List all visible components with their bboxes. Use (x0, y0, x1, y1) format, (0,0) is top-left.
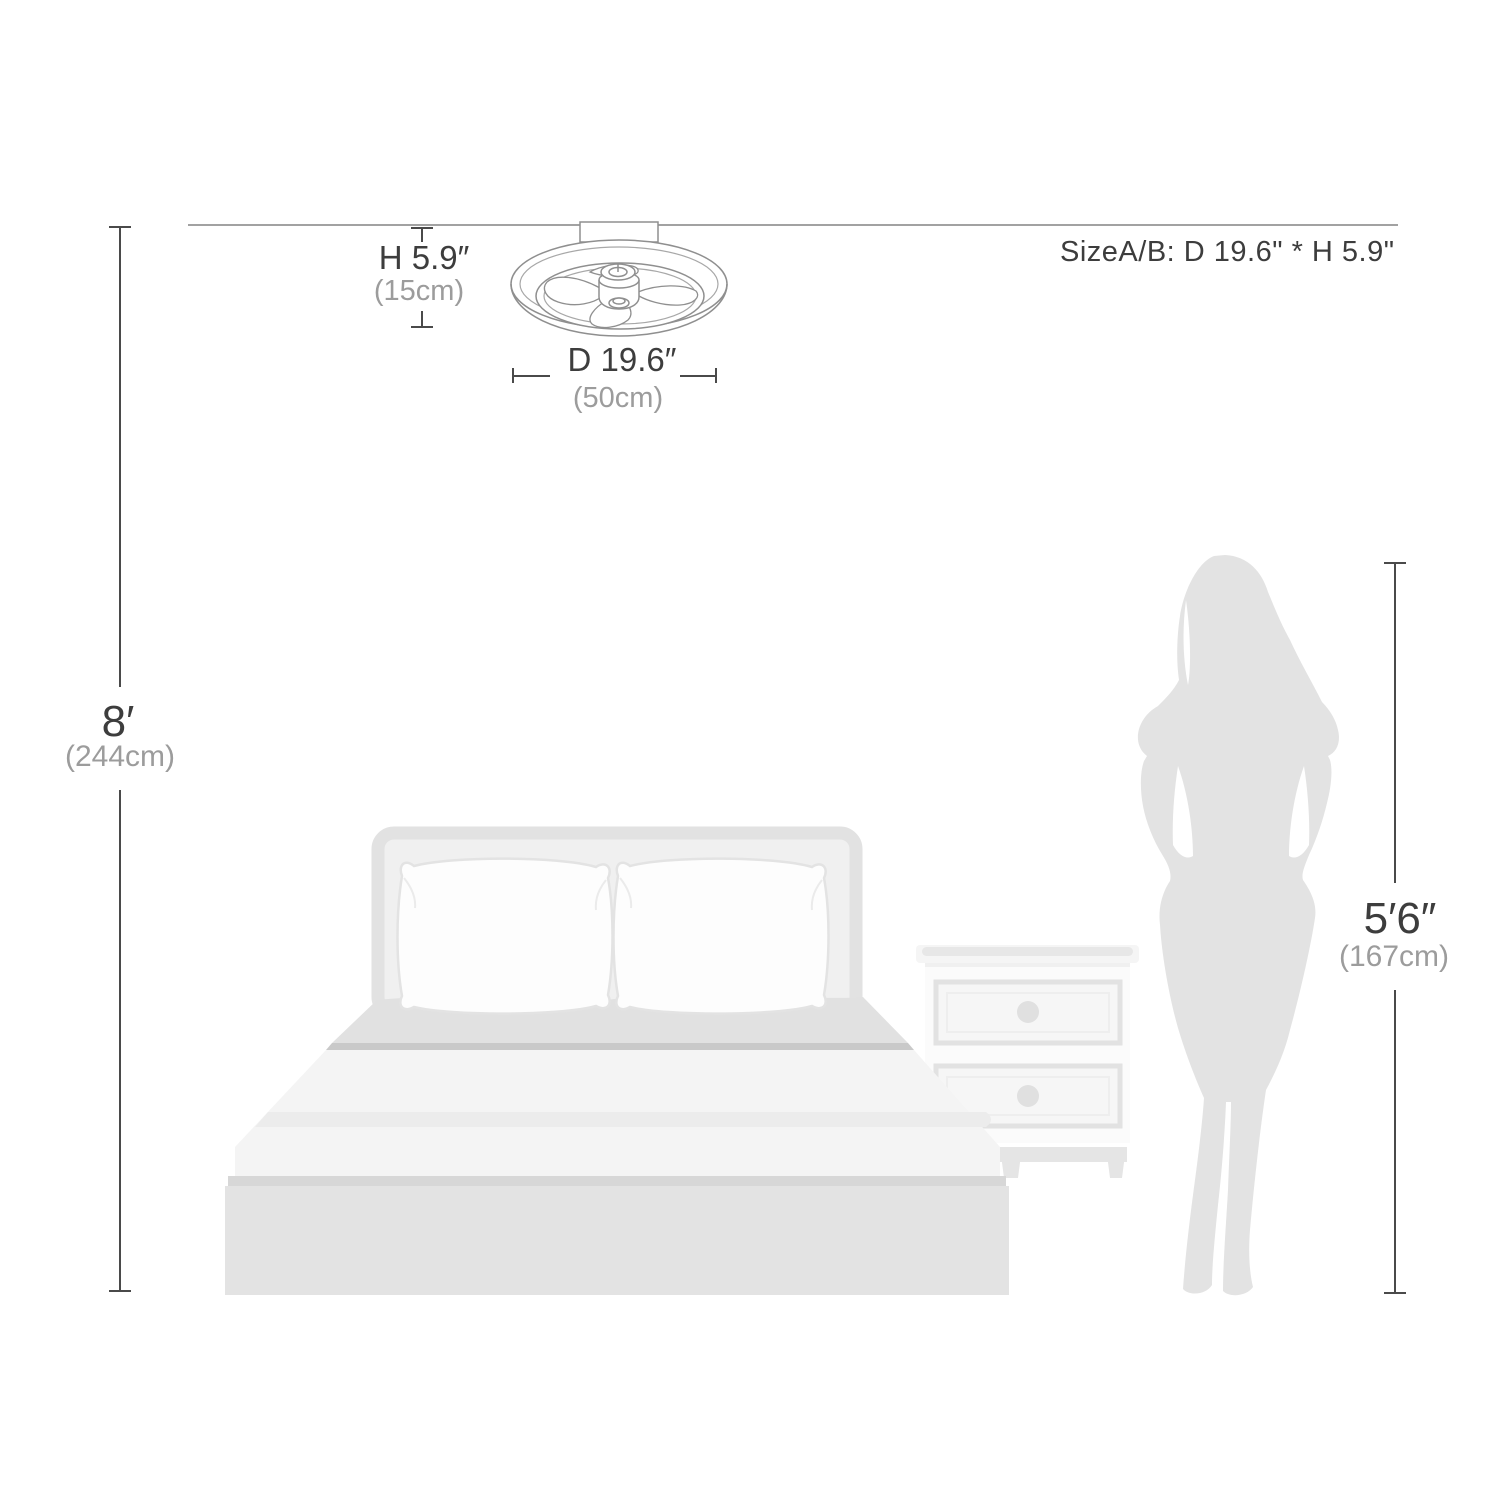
ceiling-height-label: 8′ (43, 700, 193, 744)
fan-height-metric: (15cm) (319, 277, 519, 306)
person-height-label: 5′6″ (1300, 897, 1500, 941)
fan-mount (580, 222, 658, 242)
fan-motor-top (601, 263, 635, 280)
bed-illustration (220, 815, 1020, 1300)
fan-diameter-metric: (50cm) (518, 384, 718, 413)
mattress-seam (255, 1112, 991, 1127)
drawer-knob (1017, 1001, 1039, 1023)
pillow-left (398, 859, 613, 1014)
ceiling-line (188, 224, 1398, 226)
drawer-knob (1017, 1085, 1039, 1107)
size-note: SizeA/B: D 19.6" * H 5.9" (1060, 238, 1395, 267)
mattress-edge-strip (228, 1176, 1006, 1186)
bed-base (225, 1186, 1009, 1295)
blanket-hem (326, 1043, 914, 1050)
person-height-metric: (167cm) (1294, 942, 1494, 972)
pillow-right (614, 859, 829, 1014)
fan-diameter-label: D 19.6″ (522, 343, 722, 376)
fan-height-label: H 5.9″ (324, 241, 524, 274)
ceiling-height-metric: (244cm) (20, 742, 220, 772)
size-diagram: H 5.9″ (15cm) D 19.6″ (50cm) SizeA/B: D … (0, 0, 1501, 1501)
